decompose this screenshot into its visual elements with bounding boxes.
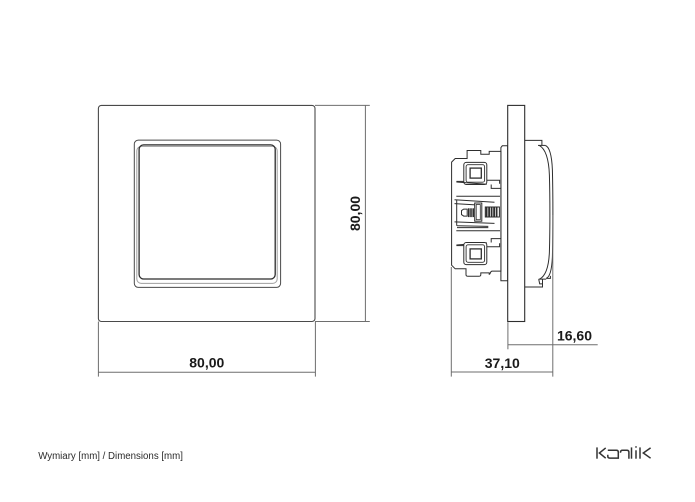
svg-text:16,60: 16,60 (557, 328, 592, 344)
svg-text:37,10: 37,10 (485, 355, 520, 371)
svg-text:80,00: 80,00 (347, 196, 363, 231)
svg-text:Wymiary [mm] / Dimensions [mm]: Wymiary [mm] / Dimensions [mm] (38, 451, 183, 462)
svg-text:80,00: 80,00 (189, 355, 224, 371)
